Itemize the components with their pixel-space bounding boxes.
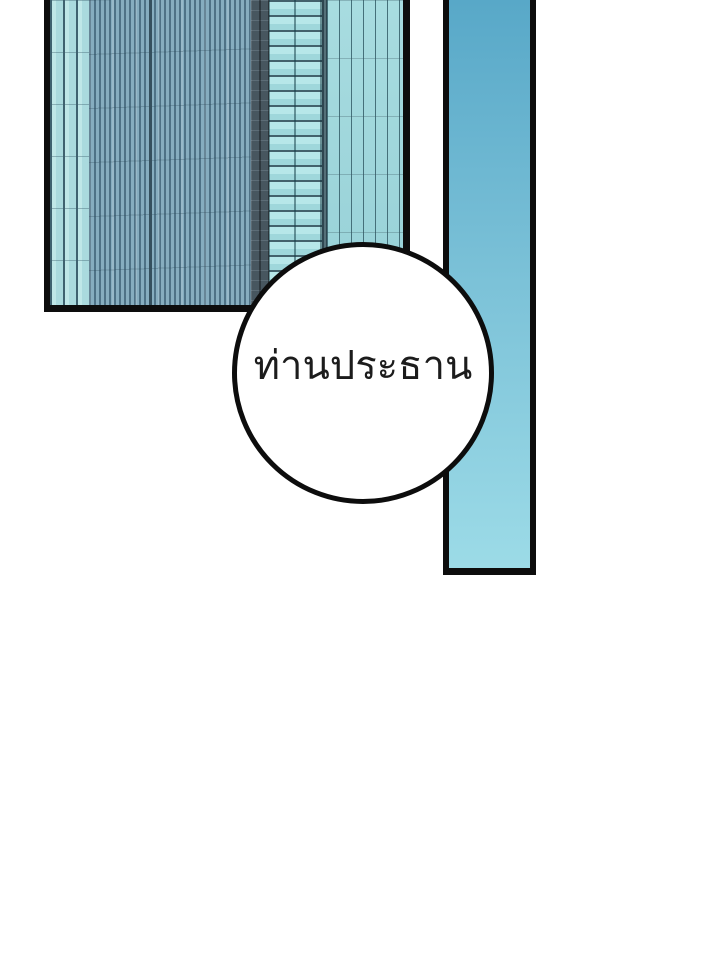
speech-bubble: ท่านประธาน (232, 242, 494, 504)
speech-bubble-text: ท่านประธาน (254, 344, 473, 388)
facade-dark-mullion-column (251, 0, 269, 305)
comic-page: ท่านประธาน (0, 0, 720, 967)
facade-bluegray-face (89, 0, 251, 305)
facade-light-strip (50, 0, 89, 305)
